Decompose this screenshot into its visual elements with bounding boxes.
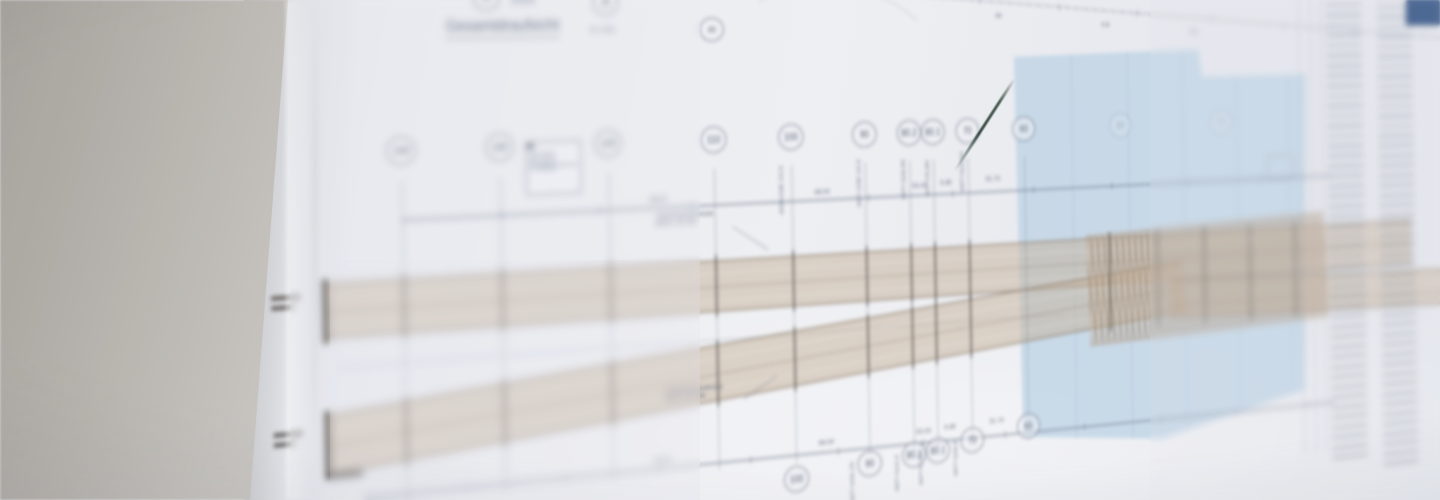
chainage-label: 437+15,84 <box>924 160 931 197</box>
station-marker: 100 <box>784 465 810 494</box>
station-leader-line <box>791 165 797 462</box>
dimension-label: 5.85 <box>940 178 952 186</box>
blur-veil-right <box>1150 0 1440 500</box>
chainage-label: 437+198 14.9 <box>777 166 785 215</box>
chainage-label: 437+114,4 <box>893 455 900 492</box>
photo-scene: 90 9.8 9.8 20 30 40 Gesamtdraufsicht M 1… <box>0 0 1440 500</box>
dimension-label: 51.70 <box>989 416 1004 425</box>
dimension-label: 53.43 <box>916 426 931 435</box>
station-marker: 70 <box>960 426 984 453</box>
station-leader-line <box>865 162 871 455</box>
dimension-label: 68.00 <box>819 437 835 447</box>
pine-needle-stroke <box>953 78 1015 172</box>
station-marker: 80.2 <box>897 120 921 146</box>
chainage-label: 437+103,29 <box>848 462 856 500</box>
blur-veil-lower-left <box>330 260 700 500</box>
station-marker: 100 <box>778 124 804 151</box>
station-marker: 90 <box>857 450 882 478</box>
chainage-label: 437+6,99 <box>917 453 924 486</box>
dimension-label: 5.85 <box>944 422 956 431</box>
wall <box>0 0 300 500</box>
pine-needle <box>945 76 1009 172</box>
fragment-label: 9.8 <box>1101 21 1109 29</box>
station-marker: 90 <box>852 121 877 148</box>
dimension-label: 68.00 <box>814 187 830 196</box>
annotation-leader <box>732 226 768 250</box>
station-marker: 80.1 <box>926 437 950 465</box>
dimension-label: 51.70 <box>986 174 1001 182</box>
chainage-label: 437+118,6 <box>952 440 959 476</box>
fragment-label: 90 <box>995 12 1002 20</box>
station-marker: 110 <box>700 126 726 153</box>
station-marker: 80.1 <box>921 119 945 145</box>
contour-line <box>729 0 940 122</box>
chainage-label: 437+118,69 <box>900 159 907 200</box>
chainage-label: 437+158 14.9 <box>855 159 863 207</box>
